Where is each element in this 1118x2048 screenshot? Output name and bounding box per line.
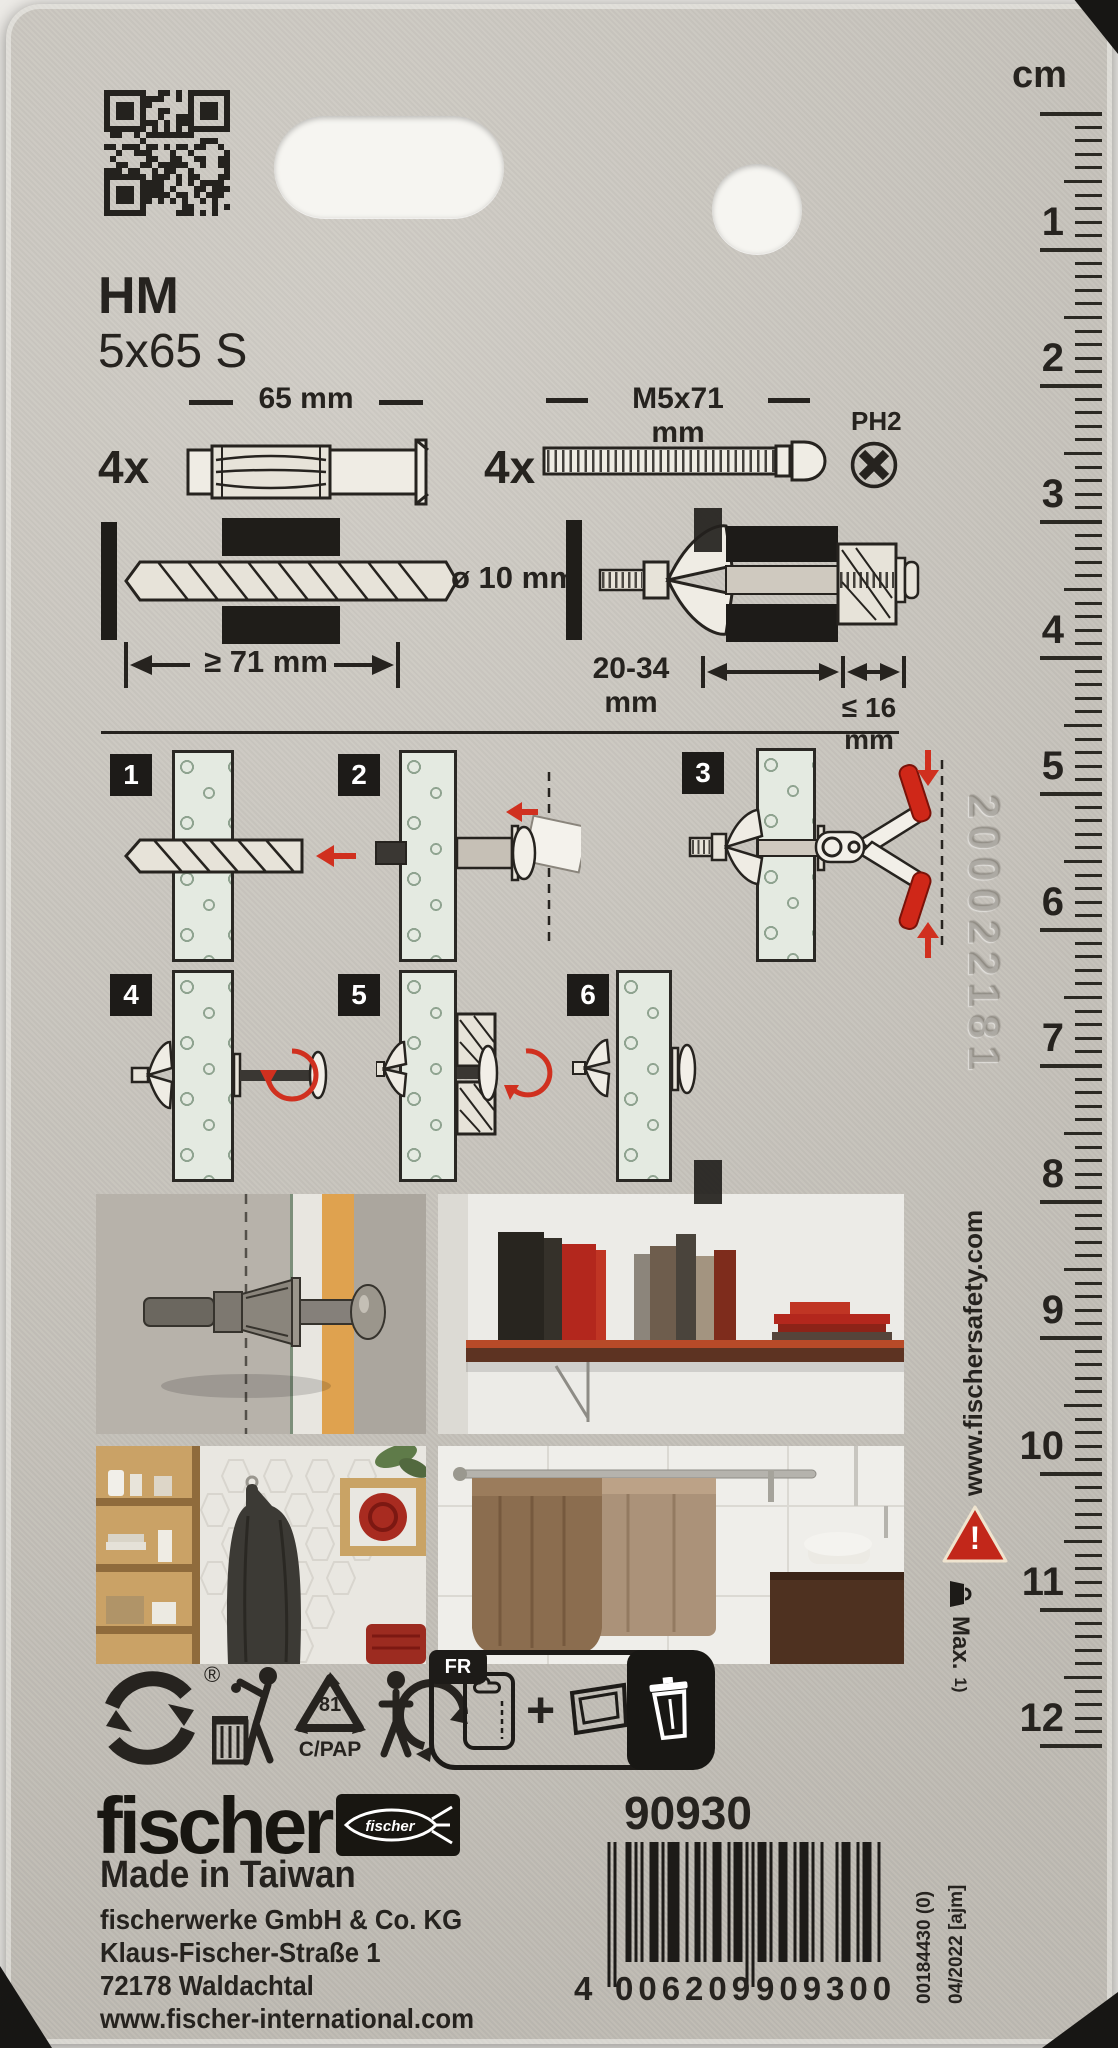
photo-anchor-cross-section bbox=[96, 1194, 426, 1434]
step-badge: 1 bbox=[110, 754, 152, 796]
dimension-dash bbox=[546, 398, 588, 403]
ruler: 123456789101112 bbox=[1006, 112, 1102, 1782]
ruler-number: 4 bbox=[1006, 608, 1064, 652]
ruler-number: 3 bbox=[1006, 472, 1064, 516]
dimension-dash bbox=[189, 400, 233, 405]
waste-bin-icon bbox=[648, 1677, 694, 1743]
website-url: www.fischer-international.com bbox=[100, 2003, 474, 2035]
dimension-dash bbox=[768, 398, 810, 403]
fish-logo-text: fischer bbox=[365, 1818, 415, 1835]
weight-icon bbox=[946, 1580, 974, 1608]
tidyman-icon bbox=[212, 1664, 290, 1768]
green-dot-icon bbox=[98, 1666, 202, 1770]
mobius-code: 81 bbox=[294, 1694, 366, 1717]
safety-url-vertical: www.fischersafety.com bbox=[958, 1146, 998, 1496]
phillips-drive-icon bbox=[849, 440, 899, 490]
step-badge: 5 bbox=[338, 974, 380, 1016]
fish-logo-icon: fischer bbox=[342, 1801, 454, 1849]
step-number: 5 bbox=[351, 979, 367, 1011]
blister-card-icon bbox=[462, 1671, 516, 1751]
ruler-number: 6 bbox=[1006, 880, 1064, 924]
fish-logo: fischer bbox=[336, 1794, 460, 1856]
ruler-number: 2 bbox=[1006, 336, 1064, 380]
anchor-length-label: 65 mm bbox=[231, 382, 381, 416]
wall-edge-bar bbox=[101, 522, 117, 640]
waste-bin-box bbox=[627, 1650, 715, 1770]
max-load-marker: Max. 1) bbox=[942, 1580, 978, 1710]
anchor-in-wall-illustration bbox=[594, 502, 920, 664]
qr-code bbox=[100, 86, 234, 220]
production-date-code: 04/2022 [ajm] bbox=[946, 1694, 972, 2004]
barcode-digits-right: 909300 bbox=[756, 1970, 882, 2008]
tray-icon bbox=[566, 1679, 630, 1741]
step6-finished-icon bbox=[551, 970, 751, 1182]
packaging-card: HM 5x65 S 4x 65 mm 4x M5x71 mm PH2 bbox=[6, 4, 1112, 2044]
ruler-number: 10 bbox=[1006, 1424, 1064, 1468]
max-load-label: Max. bbox=[946, 1616, 974, 1669]
ruler-number: 8 bbox=[1006, 1152, 1064, 1196]
drill-diameter-label: ø 10 mm bbox=[451, 560, 577, 596]
metal-anchor-illustration bbox=[186, 438, 432, 506]
step-number: 1 bbox=[123, 759, 139, 791]
dimension-dash bbox=[379, 400, 423, 405]
screw-qty-label: 4x bbox=[484, 440, 535, 494]
photo-wall-shelf-books bbox=[438, 1194, 904, 1434]
barcode-digit-first: 4 bbox=[574, 1970, 592, 2008]
product-size: 5x65 S bbox=[98, 324, 247, 379]
ruler-number: 11 bbox=[1006, 1560, 1064, 1604]
ruler-number: 7 bbox=[1006, 1016, 1064, 1060]
origin-label: Made in Taiwan bbox=[100, 1854, 356, 1897]
screw-illustration bbox=[542, 440, 838, 482]
fr-disposal-banner: FR + bbox=[429, 1650, 715, 1770]
product-line-title: HM bbox=[98, 266, 179, 326]
anchor-qty-label: 4x bbox=[98, 440, 149, 494]
ruler-number: 12 bbox=[1006, 1696, 1064, 1740]
packaging-photo: HM 5x65 S 4x 65 mm 4x M5x71 mm PH2 bbox=[0, 0, 1118, 2048]
photo-bathroom-shelves bbox=[96, 1446, 426, 1664]
ph2-drive-label: PH2 bbox=[851, 406, 902, 437]
step2-insert-anchor-icon bbox=[366, 764, 581, 954]
print-mark bbox=[694, 508, 722, 552]
street-address: Klaus-Fischer-Straße 1 bbox=[100, 1937, 381, 1969]
material-code-label: C/PAP bbox=[290, 1738, 370, 1762]
article-number: 90930 bbox=[598, 1786, 778, 1840]
ruler-unit-label: cm bbox=[1012, 54, 1067, 97]
step1-drill-icon bbox=[124, 832, 360, 880]
city-address: 72178 Waldachtal bbox=[100, 1970, 314, 2002]
step3-setting-pliers-icon bbox=[666, 748, 956, 962]
section-divider bbox=[101, 731, 899, 734]
ruler-number: 5 bbox=[1006, 744, 1064, 788]
barcode-digits-left: 006209 bbox=[615, 1970, 741, 2008]
max-fixture-label: ≤ 16 mm bbox=[814, 692, 924, 756]
photo-towel-rail bbox=[438, 1446, 904, 1664]
wall-edge-bar bbox=[566, 520, 582, 640]
production-code: 00184430 (0) bbox=[914, 1694, 940, 2004]
footnote-marker: 1) bbox=[950, 1677, 970, 1692]
company-name: fischerwerke GmbH & Co. KG bbox=[100, 1904, 462, 1936]
print-mark bbox=[694, 1160, 722, 1204]
drill-bit-illustration bbox=[124, 516, 459, 646]
step-number: 2 bbox=[351, 759, 367, 791]
euro-slot-hole bbox=[274, 116, 504, 218]
ruler-number: 1 bbox=[1006, 200, 1064, 244]
ruler-number: 9 bbox=[1006, 1288, 1064, 1332]
plus-sign: + bbox=[526, 1681, 555, 1739]
round-hang-hole bbox=[712, 164, 802, 254]
min-drill-depth-label: ≥ 71 mm bbox=[156, 644, 376, 680]
embossed-batch-code: 200022181 bbox=[956, 794, 1008, 1124]
warning-exclamation: ! bbox=[939, 1520, 1011, 1557]
